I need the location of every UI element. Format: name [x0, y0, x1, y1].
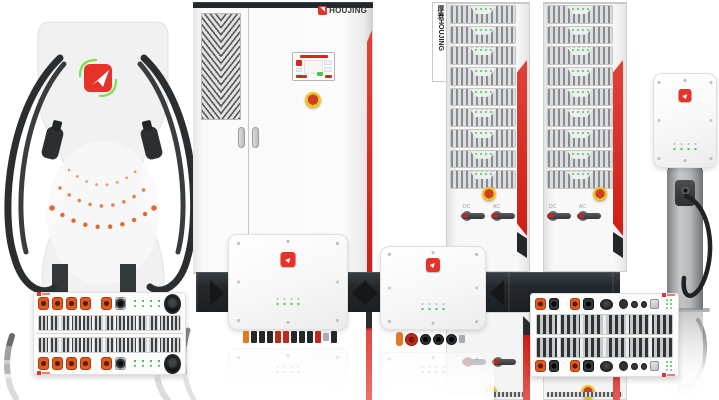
module-led-panel	[567, 151, 593, 159]
status-led-grid	[274, 297, 303, 306]
wall-charger-center: ▲	[228, 234, 348, 330]
door-handle-left	[238, 127, 245, 148]
terminal-black-round	[433, 334, 444, 345]
power-module-slot	[547, 150, 613, 169]
adjust-knob	[600, 361, 613, 372]
status-led-grid	[419, 302, 448, 311]
terminal-red	[275, 331, 281, 343]
terminal-black	[331, 331, 337, 343]
screen-green-button	[317, 72, 323, 76]
module-led-panel	[470, 27, 496, 35]
rack-bottom-grille	[547, 392, 623, 397]
reflection-fade	[220, 346, 356, 400]
dc-connector-orange	[52, 297, 63, 310]
terminal-strip	[396, 332, 465, 346]
vent-grille	[536, 314, 673, 335]
module-led-panel	[470, 47, 496, 55]
dc-connector-orange	[66, 297, 77, 310]
houjing-mini-logo	[662, 373, 676, 377]
dc-breaker-switch: DC	[547, 211, 571, 221]
touchscreen-display	[292, 52, 335, 81]
status-led-grid	[671, 142, 700, 151]
terminal-red	[283, 331, 289, 343]
terminal-black	[251, 331, 257, 343]
rack-red-stripe	[613, 60, 623, 236]
power-module-slot	[547, 26, 613, 45]
dc-connector-orange	[570, 360, 581, 372]
emergency-stop-button	[593, 187, 607, 201]
terminal-black	[299, 331, 305, 343]
reflection-fade	[372, 350, 494, 400]
terminal-small	[641, 363, 647, 370]
status-led-pair	[156, 358, 161, 369]
comm-port	[650, 361, 659, 371]
terminal-small	[631, 363, 637, 370]
band-notch	[210, 280, 224, 306]
gun-cable	[684, 196, 710, 296]
screen-menu-block	[296, 68, 302, 72]
vent-chevron-right	[221, 14, 240, 119]
dc-connector-orange	[80, 297, 91, 310]
logo-arrow-icon: ▲	[679, 90, 690, 101]
emergency-stop-button	[305, 92, 321, 108]
vent-grille	[38, 337, 181, 353]
module-led-panel	[470, 68, 496, 76]
terminal-orange	[243, 331, 249, 343]
charger-leg	[120, 264, 136, 292]
dc-connector-black	[115, 297, 126, 310]
switch-red-mark	[462, 214, 468, 218]
dc-connector-orange	[38, 357, 49, 370]
status-led-pair	[140, 298, 145, 309]
houjing-logo-icon: ▲	[426, 258, 440, 272]
band-notch	[364, 280, 378, 306]
module-led-panel	[470, 171, 496, 179]
ac-breaker-switch: AC	[577, 211, 601, 221]
dc-label: DC	[463, 204, 470, 210]
power-module-slot	[450, 150, 516, 169]
door-handle-right	[252, 127, 259, 148]
dc-connector-black	[549, 298, 560, 310]
terminal-red	[315, 331, 321, 343]
power-module-slot	[450, 108, 516, 127]
screen-info-box	[324, 67, 332, 72]
screen-logo-block	[296, 60, 302, 66]
rack-module-stack	[547, 5, 613, 189]
charger-face	[47, 141, 159, 285]
module-led-panel	[470, 109, 496, 117]
power-module-slot	[547, 5, 613, 24]
rack-stripe-lower	[523, 335, 530, 400]
logo-arrow-icon: ▲	[282, 254, 293, 265]
status-led-pair	[148, 358, 153, 369]
dc-connector-orange	[66, 357, 77, 370]
emergency-stop-button	[482, 187, 496, 201]
status-led-pair	[132, 358, 137, 369]
dc-label: DC	[549, 204, 556, 210]
vent-chevron-left	[202, 14, 221, 119]
terminal-black	[259, 331, 265, 343]
wall-charger-medium: ▲	[380, 246, 486, 330]
cabinet-red-stripe	[367, 30, 372, 274]
module-led-panel	[567, 130, 593, 138]
vent-grille	[38, 315, 181, 331]
houjing-logo-icon: ▲	[679, 89, 692, 102]
power-module-slot	[450, 170, 516, 189]
terminal-round	[619, 299, 628, 309]
module-led-panel	[567, 47, 593, 55]
rack-red-stripe	[517, 60, 527, 236]
terminal-black-round	[446, 334, 457, 345]
ac-label: AC	[493, 204, 500, 210]
dc-connector-orange	[570, 298, 581, 310]
module-led-panel	[470, 130, 496, 138]
power-module-slot	[547, 88, 613, 107]
module-connector-row	[38, 355, 181, 372]
terminal-orange-capsule	[396, 332, 403, 346]
dc-connector-black	[549, 360, 560, 372]
ac-label: AC	[579, 204, 586, 210]
power-module-slot	[547, 46, 613, 65]
status-led-pair	[156, 298, 161, 309]
dc-connector-orange	[38, 297, 49, 310]
fan-icon	[164, 294, 181, 314]
dc-connector-orange	[52, 357, 63, 370]
power-module-slot	[547, 129, 613, 148]
dc-connector-orange	[80, 357, 91, 370]
module-connector-row	[535, 296, 674, 312]
rack-brand-strip: 厚景HOUJING	[432, 2, 447, 82]
cabinet-vent-grille	[201, 13, 241, 120]
dc-connector-orange	[535, 360, 546, 372]
power-module-slot	[450, 88, 516, 107]
terminal-round	[619, 361, 628, 371]
status-led-pair	[148, 298, 153, 309]
terminal-black	[291, 331, 297, 343]
module-led-panel	[470, 89, 496, 97]
houjing-mini-logo	[662, 293, 676, 297]
module-connector-row	[535, 358, 674, 374]
terminal-black	[267, 331, 273, 343]
terminal-black-round	[420, 334, 431, 345]
charging-power-module-pair-right	[530, 293, 679, 377]
terminal-black	[307, 331, 313, 343]
vent-grille	[536, 337, 673, 358]
switch-red-mark	[578, 214, 584, 218]
screen-header-bar	[300, 55, 328, 58]
terminal-small	[641, 301, 647, 308]
status-led-pair	[140, 358, 145, 369]
ac-breaker-switch-mirror	[492, 357, 516, 367]
dc-connector-black	[583, 360, 594, 372]
terminal-strip	[243, 331, 337, 343]
status-led-pair	[132, 298, 137, 309]
module-led-panel	[567, 6, 593, 14]
houjing-mini-logo	[37, 371, 51, 375]
product-lineup-stage: ◥ HOUJING 厚景HOUJING	[0, 0, 719, 400]
module-led-panel	[567, 171, 593, 179]
dc-connector-black	[583, 298, 594, 310]
rack-brand-text: 厚景HOUJING	[435, 5, 445, 51]
band-notch	[352, 280, 366, 306]
dc-connector-black	[115, 357, 126, 370]
module-led-panel	[567, 89, 593, 97]
screen-info-box	[324, 60, 332, 65]
status-leds	[665, 298, 674, 310]
rack-module-stack	[450, 5, 516, 189]
adjust-knob	[600, 299, 613, 310]
power-module-slot	[547, 108, 613, 127]
dc-connector-orange	[101, 297, 112, 310]
screen-red-bar	[325, 75, 332, 78]
wall-charger-small: ▲	[653, 73, 717, 168]
houjing-logo: ◥ HOUJING	[318, 6, 367, 15]
power-module-slot	[547, 170, 613, 189]
houjing-logo-icon: ▲	[281, 252, 296, 267]
ac-breaker-switch: AC	[491, 211, 515, 221]
module-led-panel	[567, 68, 593, 76]
comm-port	[650, 299, 659, 309]
dc-connector-orange	[101, 357, 112, 370]
terminal-gray	[459, 335, 465, 343]
module-seam	[36, 333, 183, 334]
power-module-slot	[547, 67, 613, 86]
power-module-slot	[450, 67, 516, 86]
terminal-red-round	[405, 333, 418, 346]
terminal-gray	[323, 333, 329, 341]
module-led-panel	[567, 109, 593, 117]
logo-arrow-icon: ▲	[427, 259, 438, 270]
houjing-logo-icon: ◥	[318, 6, 327, 15]
module-connector-row	[38, 295, 181, 312]
screen-red-bar	[296, 75, 307, 78]
status-leds	[665, 360, 674, 372]
power-module-slot	[450, 46, 516, 65]
charging-power-module-pair-left	[33, 292, 186, 375]
module-led-panel	[567, 27, 593, 35]
power-module-slot	[450, 26, 516, 45]
power-module-slot	[450, 5, 516, 24]
switch-red-mark	[548, 214, 554, 218]
power-module-slot	[450, 129, 516, 148]
switch-red-mark	[492, 214, 498, 218]
houjing-logo-text: HOUJING	[329, 6, 367, 15]
module-led-panel	[470, 6, 496, 14]
dc-breaker-switch: DC	[461, 211, 485, 221]
terminal-small	[631, 301, 637, 308]
module-led-panel	[470, 151, 496, 159]
dc-connector-orange	[535, 298, 546, 310]
fan-icon	[164, 354, 181, 374]
